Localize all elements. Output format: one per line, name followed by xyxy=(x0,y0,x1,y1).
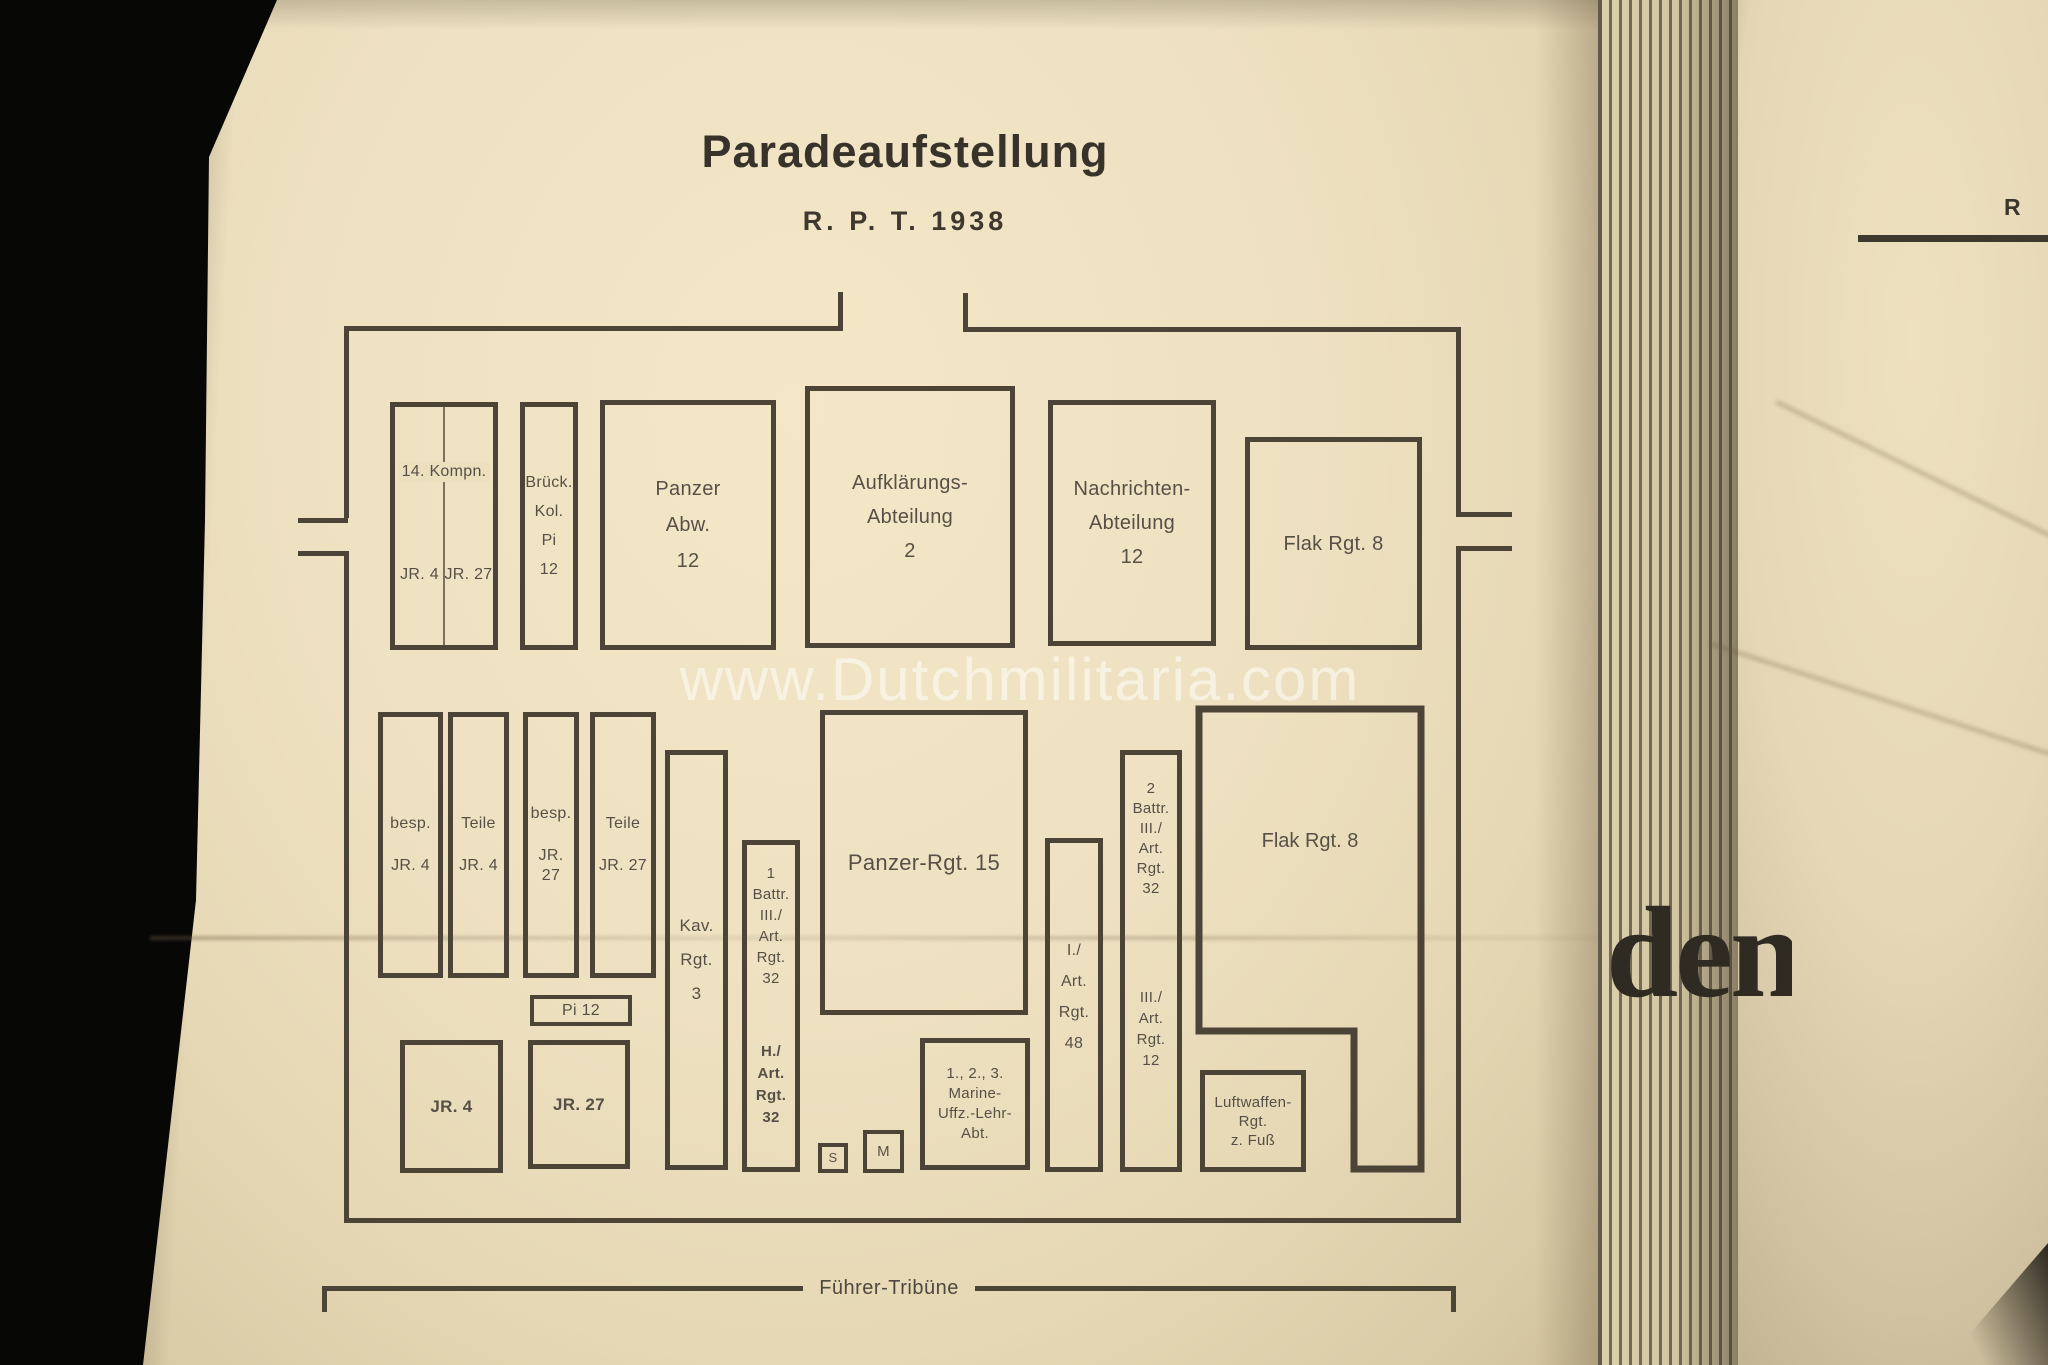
unit-box-14-kompn: 14. Kompn. JR. 4 JR. 27 xyxy=(390,402,498,650)
outline-left-notch-bottom xyxy=(298,551,348,556)
unit-label: S xyxy=(829,1148,838,1168)
unit-label: 14. Kompn. xyxy=(398,462,491,482)
tribune-bracket: Führer-Tribüne xyxy=(322,1279,1456,1297)
unit-box-besp-jr4: besp.JR. 4 xyxy=(378,712,443,978)
unit-label-upper: 1Battr.III./Art.Rgt.32 xyxy=(747,863,795,989)
right-page-heading-fragment: R xyxy=(2004,194,2024,221)
unit-box-panzer-abw-12: PanzerAbw.12 xyxy=(600,400,776,650)
outline-left-notch-top xyxy=(298,518,348,523)
outline-entrance-riser-right xyxy=(963,293,968,332)
outline-right-upper xyxy=(1456,327,1461,512)
outline-right-notch-top xyxy=(1456,512,1512,517)
unit-box-pi-12: Pi 12 xyxy=(530,995,632,1026)
unit-box-art-rgt-48: I./Art.Rgt.48 xyxy=(1045,838,1103,1172)
outline-right-notch-bottom xyxy=(1456,546,1512,551)
company-divider-line xyxy=(443,407,445,645)
unit-box-jr4-bottom: JR. 4 xyxy=(400,1040,503,1173)
diagram-subtitle: R. P. T. 1938 xyxy=(555,206,1255,237)
tribune-end-tick-right xyxy=(1451,1286,1456,1312)
unit-box-brueck-kol-pi-12: Brück.Kol.Pi12 xyxy=(520,402,578,650)
unit-box-teile-jr4: TeileJR. 4 xyxy=(448,712,509,978)
unit-label-lower: III./Art.Rgt.12 xyxy=(1125,987,1177,1071)
unit-box-besp-jr27: besp.JR. 27 xyxy=(523,712,579,978)
outline-top-left xyxy=(344,326,843,331)
unit-box-1-battr-art-rgt-32: 1Battr.III./Art.Rgt.32 H./Art.Rgt.32 xyxy=(742,840,800,1172)
outline-entrance-riser-left xyxy=(838,292,843,331)
right-page-rule xyxy=(1858,235,2048,242)
unit-label: JR. 4 xyxy=(430,1097,472,1117)
unit-box-jr27-bottom: JR. 27 xyxy=(528,1040,630,1169)
unit-box-s-marker: S xyxy=(818,1143,848,1173)
unit-box-m-marker: M xyxy=(863,1130,904,1173)
unit-label-upper: 2Battr.III./Art.Rgt.32 xyxy=(1125,779,1177,899)
unit-label: Pi 12 xyxy=(562,1000,600,1021)
watermark-text: www.Dutchmilitaria.com xyxy=(570,645,1470,714)
unit-label-lower: H./Art.Rgt.32 xyxy=(747,1041,795,1129)
unit-label: JR. 27 xyxy=(553,1095,605,1115)
unit-sublabel-right: JR. 27 xyxy=(444,565,493,585)
unit-box-2-battr-art-rgt-32: 2Battr.III./Art.Rgt.32 III./Art.Rgt.12 xyxy=(1120,750,1182,1172)
unit-box-flak-rgt-8-top: Flak Rgt. 8 xyxy=(1245,437,1422,650)
unit-sublabel-left: JR. 4 xyxy=(395,565,444,585)
right-page-word-fragment: den xyxy=(1606,878,1792,1038)
unit-box-aufklaerungs-abteilung-2: Aufklärungs-Abteilung2 xyxy=(805,386,1015,648)
page-fold-stripes xyxy=(1598,0,1738,1365)
unit-label-flak-middle: Flak Rgt. 8 xyxy=(1210,830,1410,853)
unit-box-luftwaffen-rgt-z-fuss: Luftwaffen-Rgt.z. Fuß xyxy=(1200,1070,1306,1172)
unit-box-kav-rgt-3: Kav.Rgt.3 xyxy=(665,750,728,1170)
unit-label: Panzer-Rgt. 15 xyxy=(848,853,1000,873)
photographed-document-scene: Paradeaufstellung R. P. T. 1938 14. Komp… xyxy=(0,0,2048,1365)
outline-top-right xyxy=(963,327,1456,332)
unit-box-nachrichten-abteilung-12: Nachrichten-Abteilung12 xyxy=(1048,400,1216,646)
diagram-title: Paradeaufstellung xyxy=(555,126,1255,178)
unit-label: Flak Rgt. 8 xyxy=(1284,534,1384,554)
unit-box-panzer-rgt-15: Panzer-Rgt. 15 xyxy=(820,710,1028,1015)
outline-bottom xyxy=(344,1218,1461,1223)
tribune-label: Führer-Tribüne xyxy=(803,1277,975,1300)
unit-label: M xyxy=(877,1142,890,1162)
outline-left-lower xyxy=(344,551,349,1223)
outline-left-upper xyxy=(344,326,349,518)
tribune-end-tick-left xyxy=(322,1286,327,1312)
unit-box-marine-uffz-lehr-abt: 1., 2., 3.Marine-Uffz.-Lehr-Abt. xyxy=(920,1038,1030,1170)
unit-box-teile-jr27: TeileJR. 27 xyxy=(590,712,656,978)
